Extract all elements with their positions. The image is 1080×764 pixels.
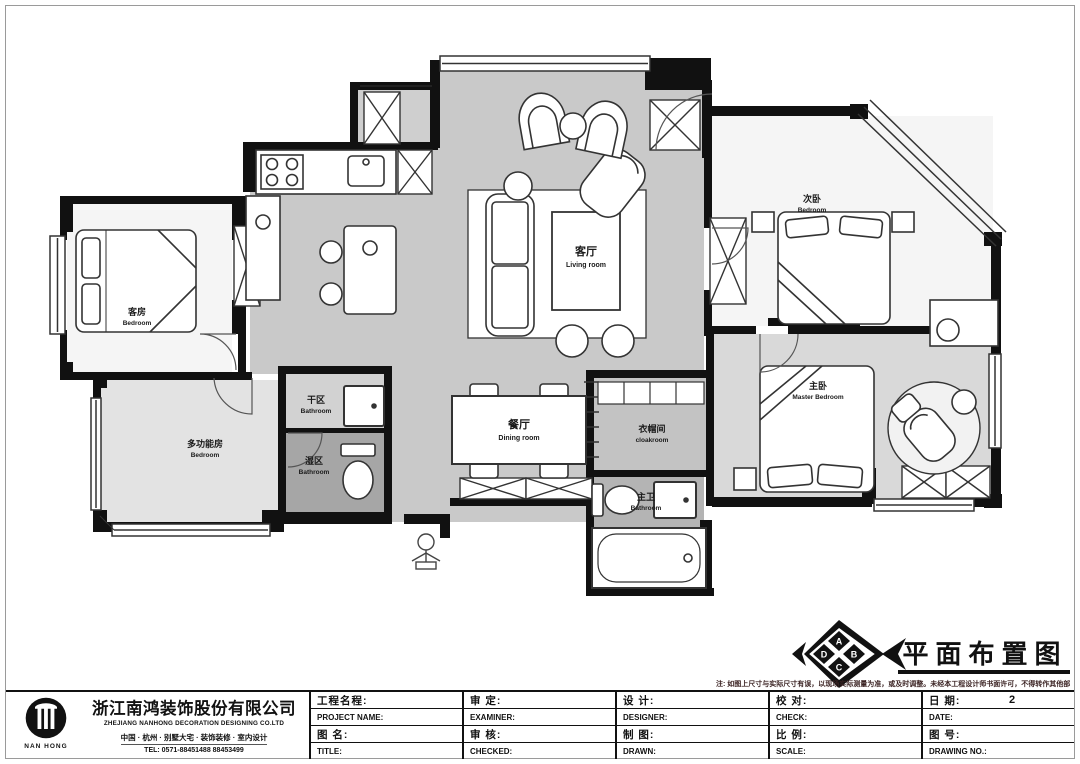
company-name: 浙江南鸿装饰股份有限公司 [82,695,306,719]
tb-col-project: 工程名程: PROJECT NAME: 图 名: TITLE: [311,692,464,759]
drawing-no-label-en: DRAWING NO.: [929,747,987,756]
label-multi-cn: 多功能房 [187,438,223,449]
designer-label-en: DESIGNER: [623,713,667,722]
tb-col-examiner: 审 定: EXAMINER: 审 核: CHECKED: [464,692,617,759]
drawing-no-label-cn: 图 号: [929,727,960,742]
date-label-en: DATE: [929,713,953,722]
label-wet-en: Bathroom [299,469,330,476]
drawing-title: 平面布置图 [900,634,1070,671]
company-tel: TEL: 0571-88451488 88453499 [82,747,306,754]
washing-machine [364,92,400,144]
compass-letter-b: B [851,650,858,660]
label-living-en: Living room [566,262,606,269]
floor-plan: 客厅 Living room 餐厅 Dining room 客房 Bedroom… [0,0,1080,616]
title-label-cn: 图 名: [317,727,348,742]
label-living-cn: 客厅 [574,244,597,258]
label-bed2-cn: 次卧 [803,193,821,204]
checked-label-en: CHECKED: [470,747,512,756]
compass-letter-d: D [821,650,828,660]
title-strip: A B C D 平面布置图 注: 如图上尺寸与实际尺寸有误，以现场实际测量为准，… [0,616,1080,690]
company-logo [24,696,68,740]
sofa [486,194,534,336]
label-cloak-en: cloakroom [636,437,669,444]
examiner-label-cn: 审 定: [470,693,501,708]
compass-letter-a: A [836,637,843,647]
bathroom-door [654,482,696,518]
title-block-table: 工程名程: PROJECT NAME: 图 名: TITLE: 审 定: EXA… [311,692,1074,759]
label-guest-cn: 客房 [127,306,146,317]
fridge [398,150,432,194]
label-mbath-en: Bathroom [631,505,662,512]
tb-col-check: 校 对: CHECK: 比 例: SCALE: [770,692,923,759]
project-name-label-en: PROJECT NAME: [317,713,383,722]
company-services: 中国 · 杭州 · 别墅大宅 · 装饰装修 · 室内设计 [121,732,268,745]
examiner-label-en: EXAMINER: [470,713,515,722]
label-bed2-en: Bedroom [798,207,827,214]
nook-side-table [952,390,976,414]
label-master-cn: 主卧 [809,380,827,391]
coffee-table [552,212,620,310]
side-table [504,172,532,200]
title-block: NAN HONG 浙江南鸿装饰股份有限公司 ZHEJIANG NANHONG D… [6,690,1074,759]
cloak-shelves [598,382,704,404]
tb-col-designer: 设 计: DESIGNER: 制 图: DRAWN: [617,692,770,759]
label-cloak-cn: 衣帽间 [638,423,665,434]
checked-label-cn: 审 核: [470,727,501,742]
label-dining-cn: 餐厅 [507,417,530,431]
nook-table [560,113,586,139]
decor-figure [412,534,440,569]
date-value: 2 [1009,694,1015,706]
label-mbath-cn: 主卫 [637,491,655,502]
drawing-sheet: 客厅 Living room 餐厅 Dining room 客房 Bedroom… [0,0,1080,764]
dining-set [452,384,586,478]
label-dry-cn: 干区 [307,395,325,405]
stool [602,325,634,357]
note-text: 注: 如图上尺寸与实际尺寸有误，以现场实际测量为准，或及时调整。未经本工程设计师… [716,679,1070,689]
scale-label-cn: 比 例: [776,727,807,742]
label-multi-en: Bedroom [191,452,220,459]
company-name-en: ZHEJIANG NANHONG DECORATION DESIGNING CO… [82,720,306,727]
tb-col-date: 日 期: 2 DATE: 图 号: DRAWING NO.: [923,692,1074,759]
sideboard [460,478,592,499]
title-underline [898,670,1070,674]
scale-label-en: SCALE: [776,747,806,756]
label-dining-en: Dining room [498,435,539,442]
designer-label-cn: 设 计: [623,693,654,708]
label-dry-en: Bathroom [301,408,332,415]
toilet [341,444,375,499]
desk [930,300,998,346]
project-name-label-cn: 工程名程: [317,693,368,708]
label-guest-en: Bedroom [123,320,152,327]
label-wet-cn: 湿区 [305,455,323,466]
bathroom-door [344,386,384,426]
title-label-en: TITLE: [317,747,342,756]
check-label-en: CHECK: [776,713,807,722]
company-logo-text: NAN HONG [20,743,72,750]
drawn-label-cn: 制 图: [623,727,654,742]
bathtub [592,528,706,588]
compass-letter-c: C [836,663,843,673]
label-master-en: Master Bedroom [792,394,844,401]
date-label-cn: 日 期: [929,693,960,708]
drawn-label-en: DRAWN: [623,747,656,756]
company-panel: NAN HONG 浙江南鸿装饰股份有限公司 ZHEJIANG NANHONG D… [6,692,311,759]
stool [556,325,588,357]
check-label-cn: 校 对: [776,693,807,708]
north-compass-icon: A B C D [792,620,914,688]
